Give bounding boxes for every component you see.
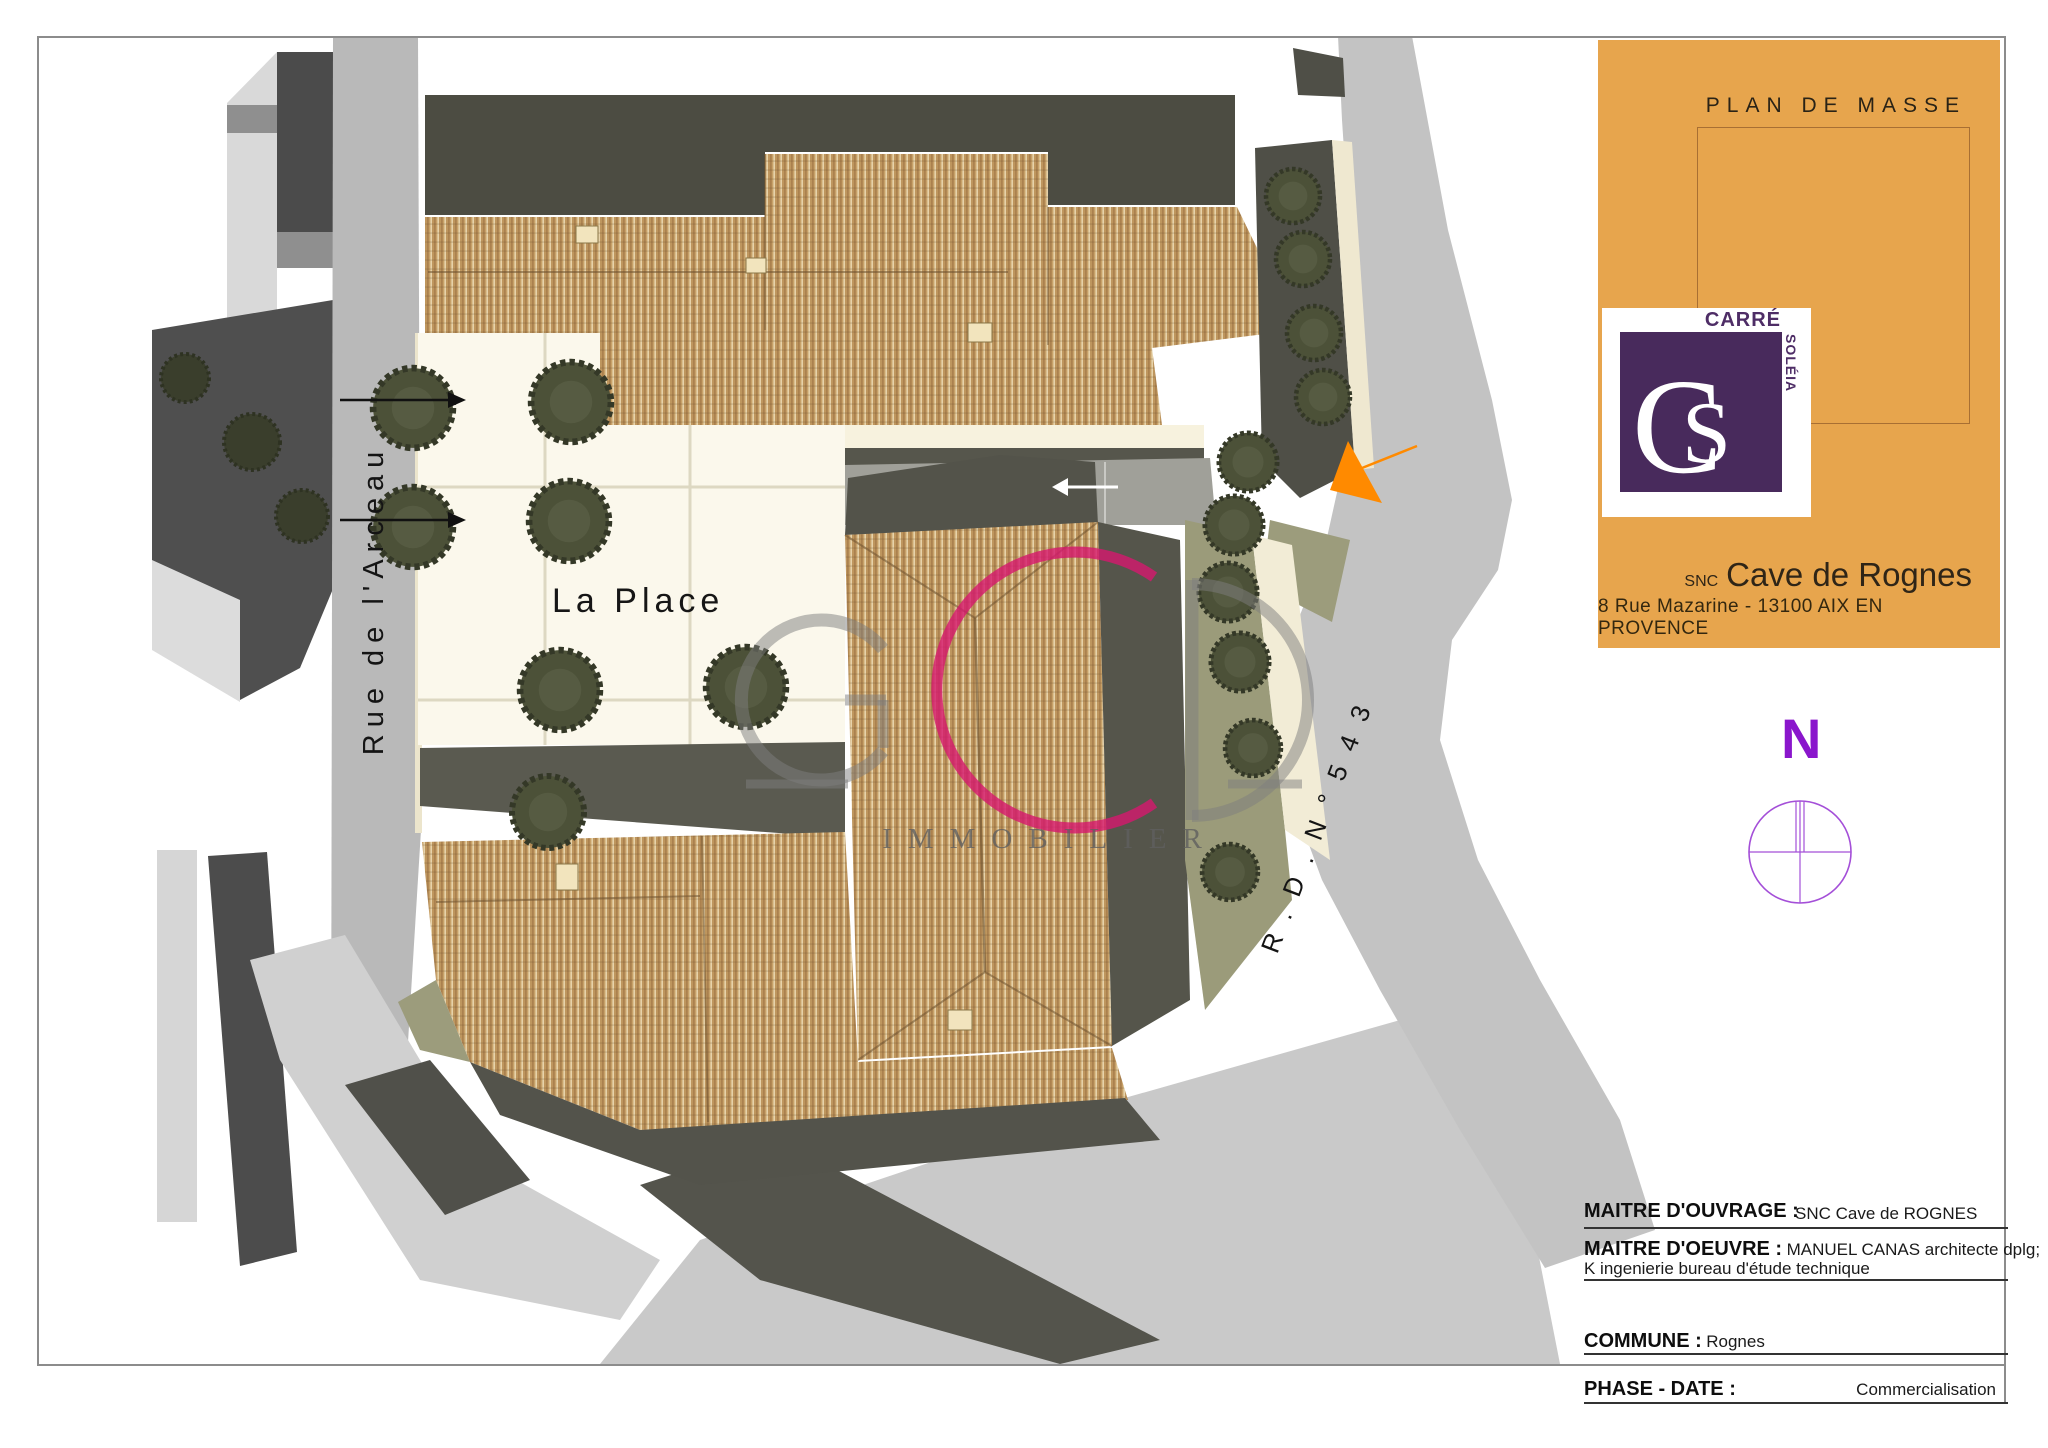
watermark-text: IMMOBILIER [882,823,1218,855]
north-label: N [1781,706,1821,771]
plan-sheet: IMMOBILIER La Place Rue de l'Arceau R . … [0,0,2048,1448]
commune-label: COMMUNE : [1584,1330,1702,1352]
client-address: 8 Rue Mazarine - 13100 AIX EN PROVENCE [1598,596,1972,640]
client-prefix: SNC [1684,573,1718,591]
architect-value: MANUEL CANAS architecte dplg; [1787,1240,2041,1259]
logo-purple-square: C S [1620,332,1782,492]
rule-4 [1584,1402,2008,1404]
logo-brand-top: CARRÉ [1602,309,1781,332]
commune-line: COMMUNE : Rognes [1584,1330,1765,1353]
client-name: Cave de Rognes [1726,556,1972,594]
phase-label: PHASE - DATE : [1584,1378,1736,1401]
plaza-label: La Place [552,582,724,620]
rule-1 [1584,1227,2008,1229]
rule-3 [1584,1353,2008,1355]
left-context-buildings [152,52,345,702]
page-border-right-extension [2004,1366,2006,1404]
compass-icon [1746,798,1854,906]
street-left-label: Rue de l'Arceau [358,445,390,755]
architect-line: MAITRE D'OEUVRE : MANUEL CANAS architect… [1584,1238,2040,1261]
svg-text:S: S [1682,385,1731,482]
central-building [845,455,1190,1060]
owner-value: SNC Cave de ROGNES [1795,1204,1977,1224]
owner-label: MAITRE D'OUVRAGE : [1584,1200,1799,1223]
title-panel: PLAN DE MASSE CARRÉ SOLÉIA C S SNC Cave … [1598,40,2000,648]
carre-soleia-logo: CARRÉ SOLÉIA C S [1602,308,1811,517]
plan-title: PLAN DE MASSE [1706,94,1966,118]
rule-2 [1584,1279,2008,1281]
commune-value: Rognes [1706,1332,1765,1351]
phase-value: Commercialisation [1840,1380,1996,1400]
logo-brand-side: SOLÉIA [1783,334,1799,392]
client-name-line: SNC Cave de Rognes [1684,556,1972,594]
architect-value2: K ingenierie bureau d'étude technique [1584,1259,1870,1279]
cs-monogram-icon: C S [1620,332,1782,492]
architect-label: MAITRE D'OEUVRE : [1584,1238,1782,1260]
